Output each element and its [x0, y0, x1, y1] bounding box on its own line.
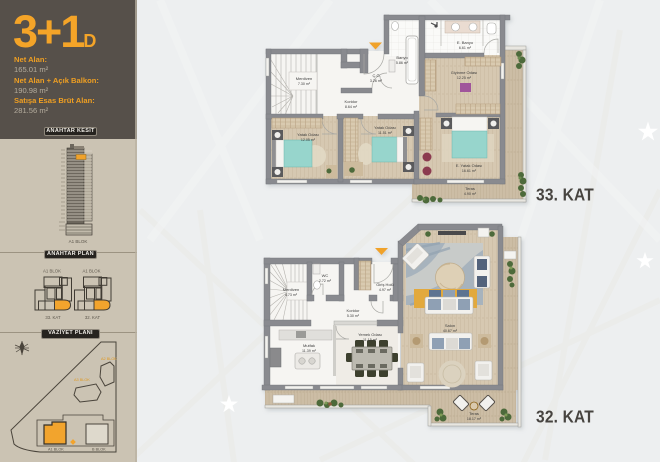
svg-text:Koridor: Koridor	[345, 99, 359, 104]
svg-text:Mutfak: Mutfak	[303, 343, 315, 348]
svg-text:40.67 m²: 40.67 m²	[443, 329, 458, 333]
svg-text:Yemek Odası: Yemek Odası	[358, 332, 382, 337]
svg-text:11.51 m²: 11.51 m²	[378, 131, 393, 135]
svg-text:Giriş Holü: Giriş Holü	[376, 282, 394, 287]
svg-text:16.61 m²: 16.61 m²	[462, 169, 477, 173]
svg-text:Teras: Teras	[469, 411, 479, 416]
svg-text:3.26 m²: 3.26 m²	[370, 79, 383, 83]
svg-text:18.17 m²: 18.17 m²	[467, 417, 482, 421]
svg-text:E. Yatak Odası: E. Yatak Odası	[456, 163, 483, 168]
svg-text:6.61 m²: 6.61 m²	[459, 46, 472, 50]
svg-text:7.30 m²: 7.30 m²	[298, 82, 311, 86]
svg-text:8.64 m²: 8.64 m²	[345, 105, 358, 109]
svg-text:Merdiven: Merdiven	[296, 76, 312, 81]
svg-text:Yatak Odası: Yatak Odası	[374, 125, 396, 130]
svg-text:11.15 m²: 11.15 m²	[363, 338, 378, 342]
svg-text:Ç.Ö: Ç.Ö	[372, 73, 379, 78]
svg-text:12.25 m²: 12.25 m²	[457, 76, 472, 80]
svg-text:Merdiven: Merdiven	[283, 287, 299, 292]
svg-text:Giyinme Odası: Giyinme Odası	[451, 70, 477, 75]
svg-text:Banyo: Banyo	[396, 55, 408, 60]
svg-text:E. Banyo: E. Banyo	[457, 40, 474, 45]
svg-text:4.97 m²: 4.97 m²	[379, 288, 392, 292]
svg-text:5.86 m²: 5.86 m²	[396, 61, 409, 65]
svg-text:Teras: Teras	[465, 186, 475, 191]
svg-text:4.90 m²: 4.90 m²	[464, 192, 477, 196]
svg-text:2.72 m²: 2.72 m²	[319, 279, 332, 283]
svg-text:11.39 m²: 11.39 m²	[302, 349, 317, 353]
svg-text:WC: WC	[322, 273, 329, 278]
svg-text:4.73 m²: 4.73 m²	[285, 293, 298, 297]
svg-text:5.30 m²: 5.30 m²	[347, 314, 360, 318]
svg-text:Yatak Odası: Yatak Odası	[297, 132, 319, 137]
svg-text:Koridor: Koridor	[347, 308, 361, 313]
svg-text:12.05 m²: 12.05 m²	[301, 138, 316, 142]
svg-text:Salon: Salon	[445, 323, 455, 328]
